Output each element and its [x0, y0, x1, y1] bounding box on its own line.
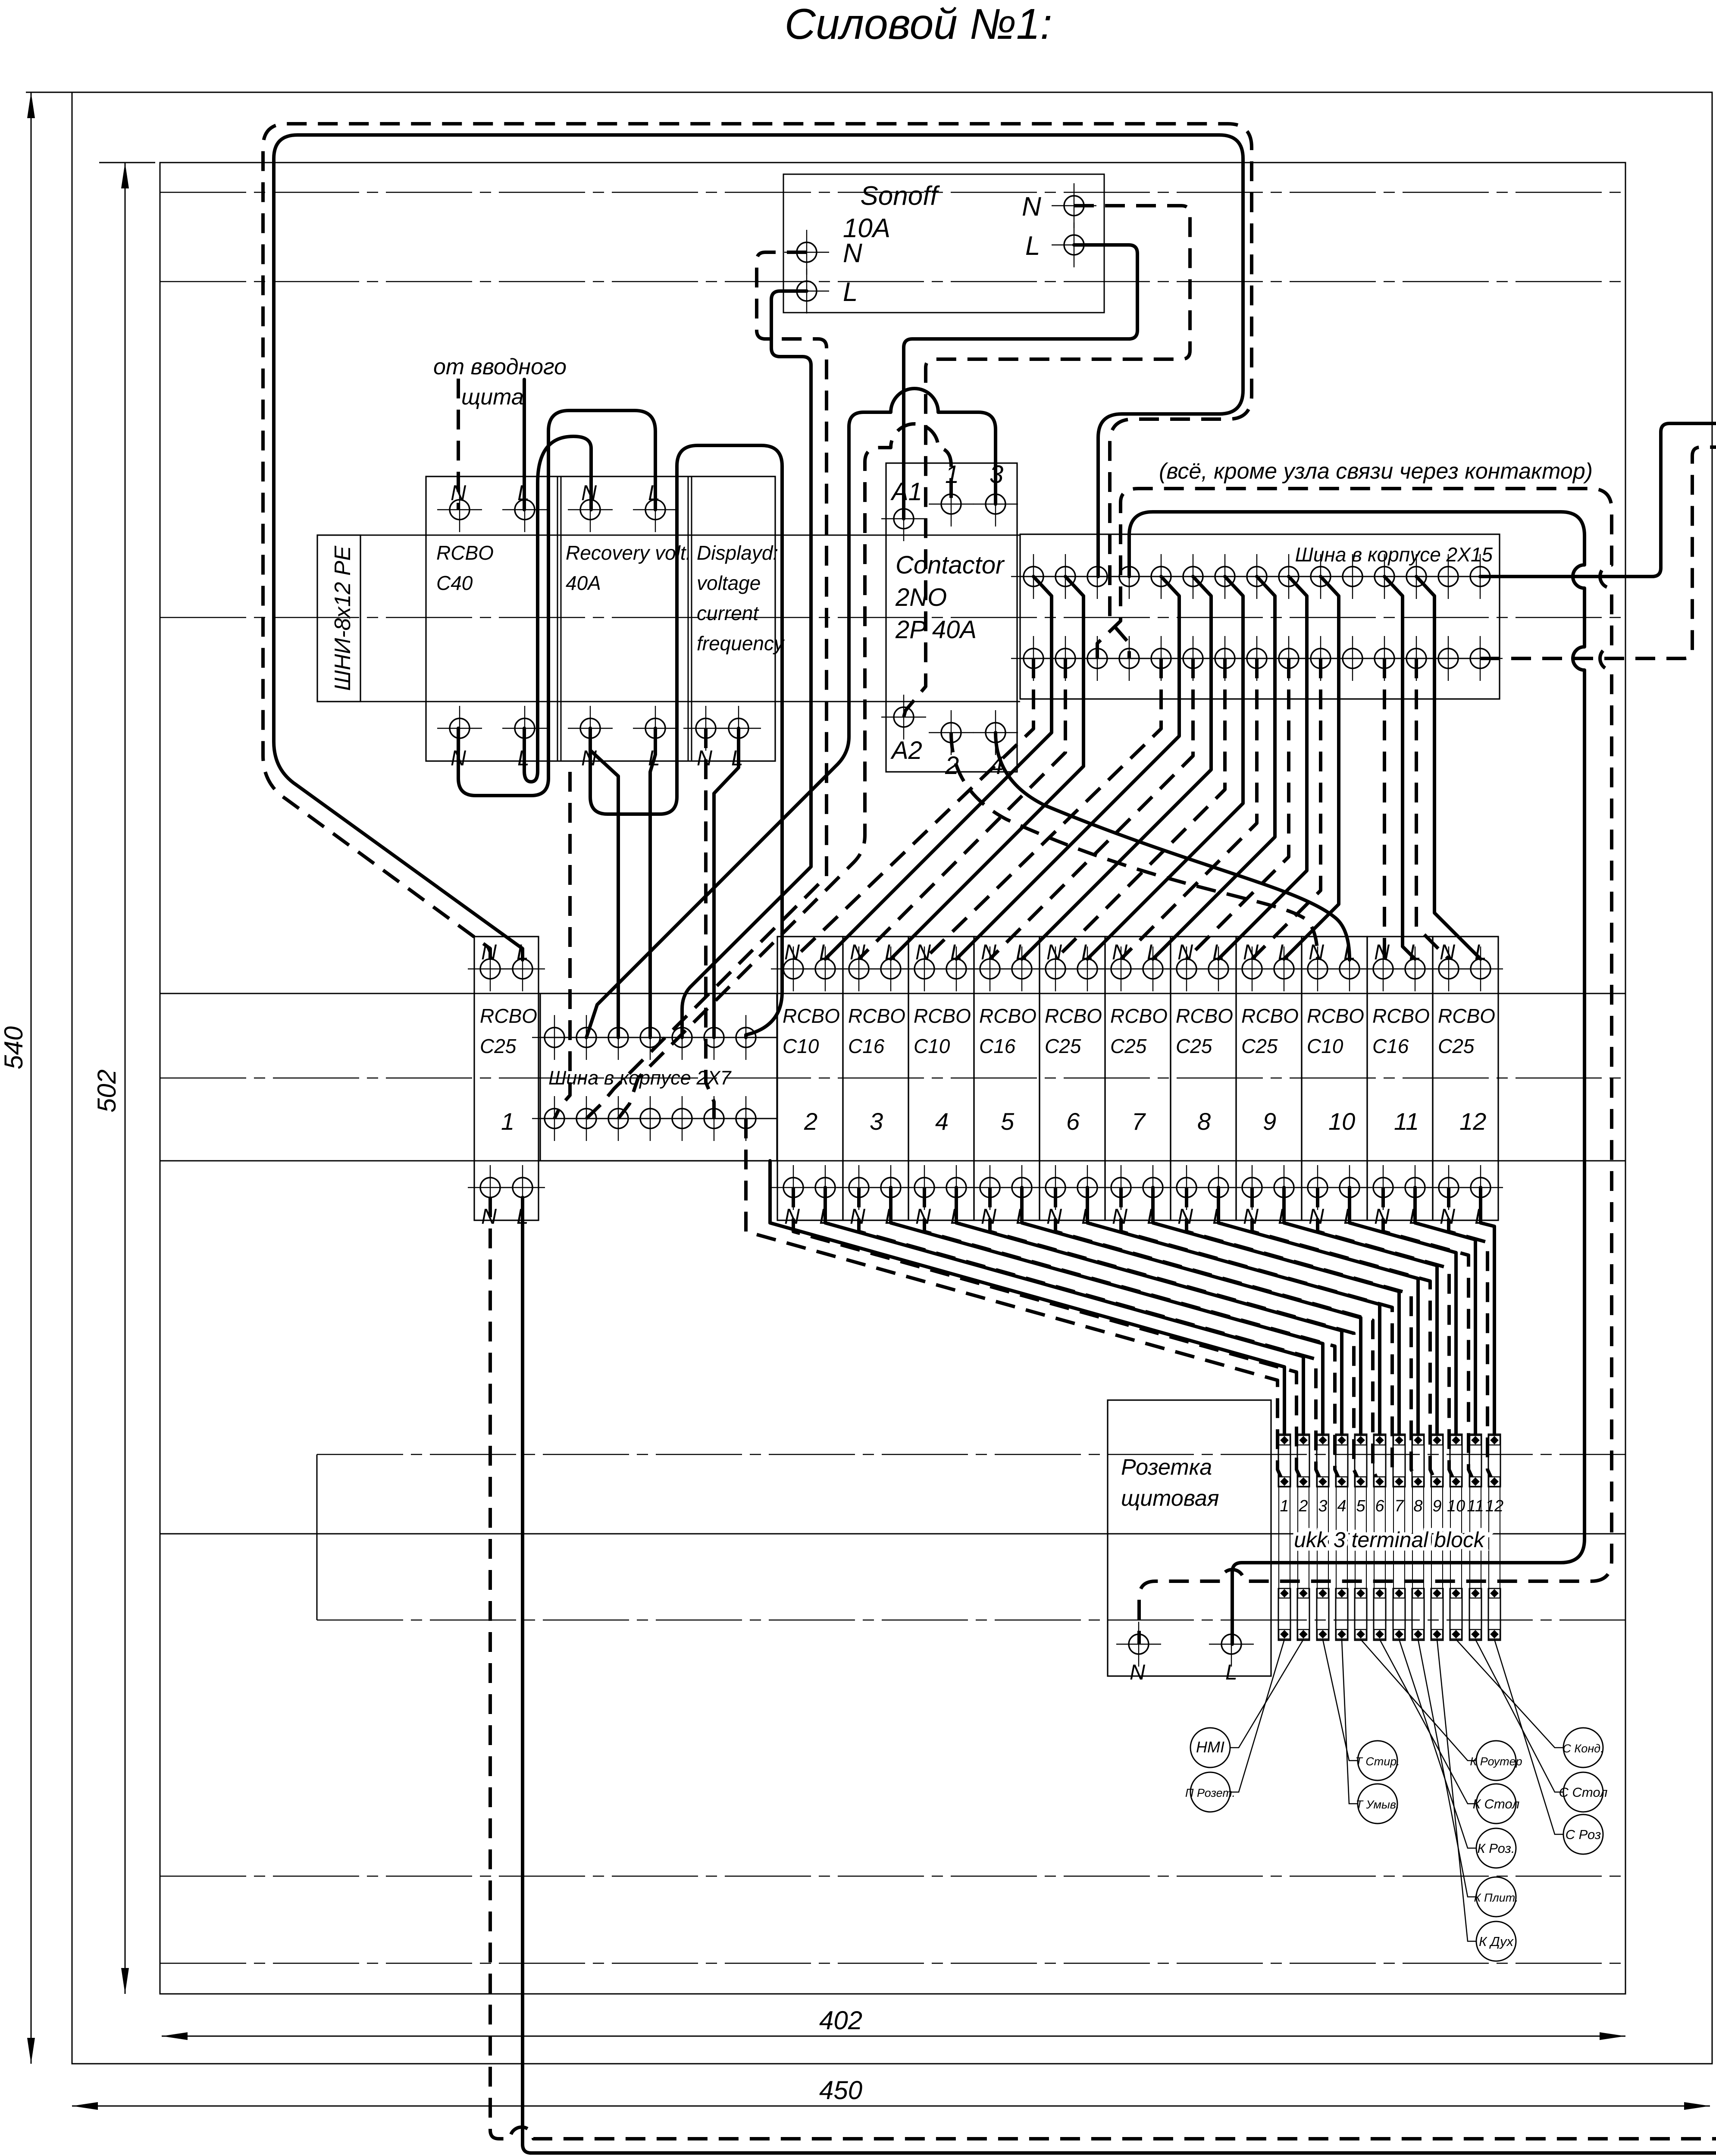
svg-text:Силовой №1:: Силовой №1:: [785, 0, 1052, 48]
svg-text:C25: C25: [1045, 1035, 1081, 1057]
svg-text:RCBO: RCBO: [1307, 1005, 1364, 1027]
svg-text:1: 1: [501, 1108, 514, 1135]
svg-text:4: 4: [1337, 1497, 1346, 1515]
svg-text:(всё, кроме узла связи через к: (всё, кроме узла связи через контактор): [1159, 459, 1593, 484]
svg-text:L: L: [517, 940, 529, 964]
svg-text:N: N: [451, 481, 467, 505]
svg-text:10: 10: [1447, 1497, 1465, 1515]
svg-text:frequency: frequency: [697, 632, 785, 655]
svg-text:N: N: [1374, 1204, 1390, 1228]
svg-text:N: N: [581, 746, 597, 770]
svg-text:C25: C25: [1110, 1035, 1147, 1057]
svg-text:540: 540: [0, 1026, 28, 1069]
svg-text:2: 2: [945, 752, 959, 780]
svg-text:L: L: [1016, 1204, 1028, 1228]
svg-text:N: N: [981, 1204, 997, 1228]
svg-text:К Плит.: К Плит.: [1474, 1891, 1519, 1904]
svg-text:N: N: [784, 940, 800, 964]
svg-text:3: 3: [990, 461, 1003, 489]
svg-text:L: L: [1147, 1204, 1159, 1228]
svg-text:9: 9: [1432, 1497, 1441, 1515]
svg-text:A2: A2: [890, 736, 922, 765]
svg-text:RCBO: RCBO: [436, 542, 494, 564]
svg-text:L: L: [1343, 1204, 1356, 1228]
svg-text:40A: 40A: [566, 572, 601, 594]
svg-text:502: 502: [92, 1069, 121, 1112]
svg-text:RCBO: RCBO: [914, 1005, 971, 1027]
svg-text:L: L: [1278, 940, 1290, 964]
svg-text:N: N: [1112, 940, 1128, 964]
svg-text:RCBO: RCBO: [1372, 1005, 1430, 1027]
svg-text:ШНИ-8х12 РЕ: ШНИ-8х12 РЕ: [330, 545, 355, 691]
svg-text:RCBO: RCBO: [1045, 1005, 1102, 1027]
svg-text:8: 8: [1197, 1108, 1211, 1135]
svg-text:1: 1: [945, 461, 959, 489]
svg-text:N: N: [1440, 940, 1456, 964]
svg-text:К Роз.: К Роз.: [1477, 1841, 1515, 1856]
svg-text:10: 10: [1328, 1108, 1355, 1135]
svg-text:N: N: [1177, 1204, 1193, 1228]
svg-text:С Стол: С Стол: [1559, 1785, 1608, 1800]
svg-text:11: 11: [1394, 1108, 1419, 1135]
svg-text:3: 3: [870, 1108, 883, 1135]
svg-text:L: L: [1147, 940, 1159, 964]
svg-text:N: N: [843, 238, 862, 268]
svg-text:N: N: [1112, 1204, 1128, 1228]
svg-text:N: N: [1374, 940, 1390, 964]
svg-text:RCBO: RCBO: [480, 1005, 537, 1027]
svg-text:C25: C25: [1438, 1035, 1475, 1057]
svg-text:Шина в корпусе 2Х15: Шина в корпусе 2Х15: [1295, 543, 1493, 566]
svg-text:L: L: [1212, 1204, 1224, 1228]
svg-text:RCBO: RCBO: [1110, 1005, 1168, 1027]
svg-text:L: L: [517, 746, 529, 770]
svg-text:4: 4: [990, 752, 1003, 780]
svg-text:N: N: [1046, 1204, 1062, 1228]
svg-text:2NO: 2NO: [895, 583, 947, 611]
svg-text:Displayd:: Displayd:: [697, 542, 778, 564]
svg-text:11: 11: [1467, 1497, 1484, 1515]
svg-text:7: 7: [1394, 1497, 1404, 1515]
svg-text:N: N: [915, 940, 931, 964]
svg-text:Contactor: Contactor: [896, 551, 1005, 579]
svg-text:N: N: [481, 940, 497, 964]
svg-text:C16: C16: [1372, 1035, 1409, 1057]
svg-text:C25: C25: [480, 1035, 517, 1057]
svg-text:C10: C10: [783, 1035, 819, 1057]
svg-text:С Роз: С Роз: [1566, 1827, 1601, 1842]
svg-text:RCBO: RCBO: [1176, 1005, 1233, 1027]
svg-text:C40: C40: [436, 572, 473, 594]
svg-text:L: L: [1409, 1204, 1421, 1228]
svg-text:К Дух: К Дух: [1479, 1934, 1514, 1949]
svg-text:L: L: [843, 277, 858, 307]
svg-text:N: N: [481, 1204, 497, 1228]
svg-text:Т Стир.: Т Стир.: [1355, 1755, 1400, 1768]
svg-text:L: L: [1475, 1204, 1487, 1228]
svg-text:N: N: [1243, 940, 1259, 964]
svg-text:8: 8: [1413, 1497, 1422, 1515]
svg-text:К Роутер: К Роутер: [1470, 1755, 1522, 1768]
svg-text:4: 4: [935, 1108, 949, 1135]
svg-text:C10: C10: [1307, 1035, 1343, 1057]
svg-text:RCBO: RCBO: [1438, 1005, 1495, 1027]
svg-text:RCBO: RCBO: [783, 1005, 840, 1027]
svg-text:L: L: [885, 1204, 897, 1228]
svg-text:Шина в корпусе 2Х7: Шина в корпусе 2Х7: [548, 1067, 732, 1089]
svg-text:L: L: [819, 940, 831, 964]
svg-text:7: 7: [1132, 1108, 1146, 1135]
svg-text:L: L: [648, 481, 660, 505]
svg-text:L: L: [1225, 1660, 1237, 1684]
svg-text:N: N: [1440, 1204, 1456, 1228]
svg-text:2: 2: [1298, 1497, 1308, 1515]
svg-text:L: L: [819, 1204, 831, 1228]
svg-text:C10: C10: [914, 1035, 950, 1057]
svg-text:5: 5: [1001, 1108, 1015, 1135]
svg-text:L: L: [517, 481, 529, 505]
svg-text:C25: C25: [1241, 1035, 1278, 1057]
svg-text:L: L: [731, 746, 743, 770]
svg-text:3: 3: [1318, 1497, 1327, 1515]
svg-text:6: 6: [1375, 1497, 1384, 1515]
svg-text:К Стол: К Стол: [1473, 1796, 1520, 1811]
svg-text:L: L: [1212, 940, 1224, 964]
svg-text:С Конд.: С Конд.: [1563, 1742, 1603, 1755]
svg-text:N: N: [697, 746, 713, 770]
svg-text:N: N: [784, 1204, 800, 1228]
svg-text:9: 9: [1263, 1108, 1276, 1135]
svg-text:2: 2: [804, 1108, 817, 1135]
svg-text:L: L: [1343, 940, 1356, 964]
svg-text:L: L: [1475, 940, 1487, 964]
svg-text:N: N: [850, 940, 866, 964]
svg-text:ukk 3 terminal block: ukk 3 terminal block: [1294, 1528, 1486, 1552]
svg-text:6: 6: [1066, 1108, 1080, 1135]
svg-text:N: N: [915, 1204, 931, 1228]
svg-text:L: L: [1016, 940, 1028, 964]
svg-text:450: 450: [819, 2076, 862, 2105]
svg-text:N: N: [1130, 1660, 1146, 1684]
svg-text:N: N: [1046, 940, 1062, 964]
svg-text:N: N: [581, 481, 597, 505]
svg-text:L: L: [885, 940, 897, 964]
svg-text:N: N: [981, 940, 997, 964]
svg-text:L: L: [950, 1204, 962, 1228]
svg-text:Розетка: Розетка: [1121, 1455, 1212, 1480]
svg-text:C25: C25: [1176, 1035, 1212, 1057]
svg-text:N: N: [1022, 192, 1041, 222]
svg-text:N: N: [1309, 1204, 1325, 1228]
svg-text:Recovery volt.: Recovery volt.: [566, 542, 691, 564]
svg-text:C16: C16: [848, 1035, 885, 1057]
svg-text:N: N: [451, 746, 467, 770]
svg-text:щитовая: щитовая: [1121, 1486, 1219, 1511]
svg-text:2P 40A: 2P 40A: [895, 616, 977, 644]
svg-text:N: N: [1177, 940, 1193, 964]
svg-text:12: 12: [1459, 1108, 1486, 1135]
svg-text:HMI: HMI: [1196, 1738, 1224, 1756]
svg-text:L: L: [1025, 231, 1040, 261]
svg-text:5: 5: [1356, 1497, 1365, 1515]
svg-text:L: L: [1081, 940, 1093, 964]
svg-text:щита: щита: [461, 385, 524, 410]
svg-text:Sonoff: Sonoff: [860, 181, 940, 211]
svg-text:current: current: [697, 602, 759, 624]
svg-text:402: 402: [819, 2006, 862, 2035]
svg-text:A1: A1: [890, 478, 922, 506]
svg-text:N: N: [1309, 940, 1325, 964]
svg-text:1: 1: [1280, 1497, 1289, 1515]
svg-text:RCBO: RCBO: [979, 1005, 1036, 1027]
svg-text:C16: C16: [979, 1035, 1016, 1057]
svg-text:L: L: [517, 1204, 529, 1228]
svg-text:N: N: [850, 1204, 866, 1228]
svg-text:L: L: [1081, 1204, 1093, 1228]
svg-text:L: L: [648, 746, 660, 770]
svg-text:N: N: [1243, 1204, 1259, 1228]
svg-text:12: 12: [1485, 1497, 1503, 1515]
svg-text:Т Умыв.: Т Умыв.: [1356, 1798, 1400, 1811]
svg-text:от вводного: от вводного: [433, 354, 567, 379]
svg-text:П Розет.: П Розет.: [1185, 1786, 1235, 1799]
svg-text:L: L: [1278, 1204, 1290, 1228]
svg-text:RCBO: RCBO: [1241, 1005, 1299, 1027]
svg-text:L: L: [1409, 940, 1421, 964]
svg-text:voltage: voltage: [697, 572, 761, 594]
svg-text:RCBO: RCBO: [848, 1005, 905, 1027]
svg-text:L: L: [950, 940, 962, 964]
